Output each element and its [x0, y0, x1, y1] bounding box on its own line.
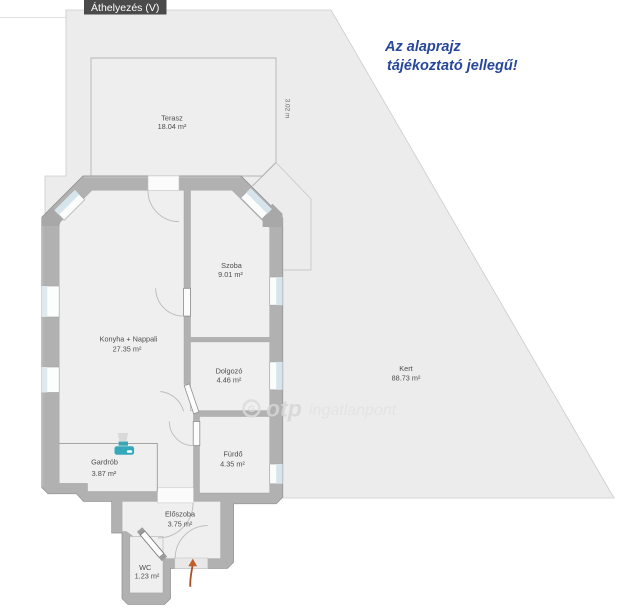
svg-text:3.75 m²: 3.75 m²: [168, 519, 193, 528]
svg-text:1.23 m²: 1.23 m²: [135, 572, 160, 581]
svg-text:Szoba: Szoba: [221, 261, 243, 270]
svg-text:4.35 m²: 4.35 m²: [220, 460, 245, 469]
svg-text:G: G: [248, 404, 255, 414]
svg-text:27.35 m²: 27.35 m²: [113, 344, 142, 353]
svg-text:ingatlanpont: ingatlanpont: [309, 402, 397, 419]
svg-text:4.46 m²: 4.46 m²: [217, 375, 242, 384]
svg-text:18.04 m²: 18.04 m²: [158, 122, 187, 131]
svg-text:Fürdő: Fürdő: [223, 450, 242, 459]
svg-text:tájékoztató jellegű!: tájékoztató jellegű!: [387, 58, 518, 74]
svg-text:88.73 m²: 88.73 m²: [392, 374, 421, 383]
svg-text:9.01 m²: 9.01 m²: [218, 270, 243, 279]
svg-text:3.02 m: 3.02 m: [284, 99, 291, 119]
svg-text:Kert: Kert: [399, 364, 412, 373]
svg-text:3.87 m²: 3.87 m²: [92, 469, 117, 478]
svg-text:Előszoba: Előszoba: [165, 510, 196, 519]
svg-text:Dolgozó: Dolgozó: [216, 367, 243, 376]
svg-text:WC: WC: [139, 563, 151, 572]
svg-text:otp: otp: [266, 396, 302, 422]
svg-text:Az alaprajz: Az alaprajz: [384, 39, 461, 55]
svg-text:Gardrób: Gardrób: [91, 458, 118, 467]
svg-text:Konyha + Nappali: Konyha + Nappali: [100, 335, 158, 344]
svg-text:Áthelyezés (V): Áthelyezés (V): [91, 1, 159, 14]
